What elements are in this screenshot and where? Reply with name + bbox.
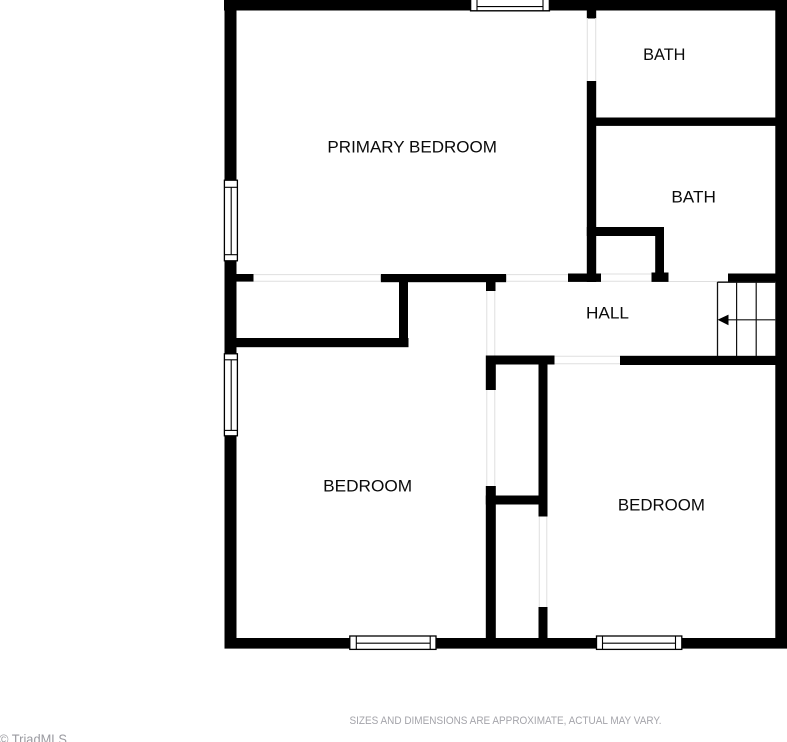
- svg-text:HALL: HALL: [586, 303, 629, 322]
- svg-text:SIZES AND DIMENSIONS ARE APPRO: SIZES AND DIMENSIONS ARE APPROXIMATE, AC…: [350, 715, 662, 727]
- svg-text:PRIMARY BEDROOM: PRIMARY BEDROOM: [327, 137, 497, 156]
- svg-text:BEDROOM: BEDROOM: [618, 495, 705, 514]
- svg-text:BEDROOM: BEDROOM: [323, 476, 412, 495]
- svg-text:BATH: BATH: [671, 187, 716, 206]
- svg-text:BATH: BATH: [643, 45, 685, 64]
- svg-text:© TriadMLS: © TriadMLS: [0, 731, 67, 742]
